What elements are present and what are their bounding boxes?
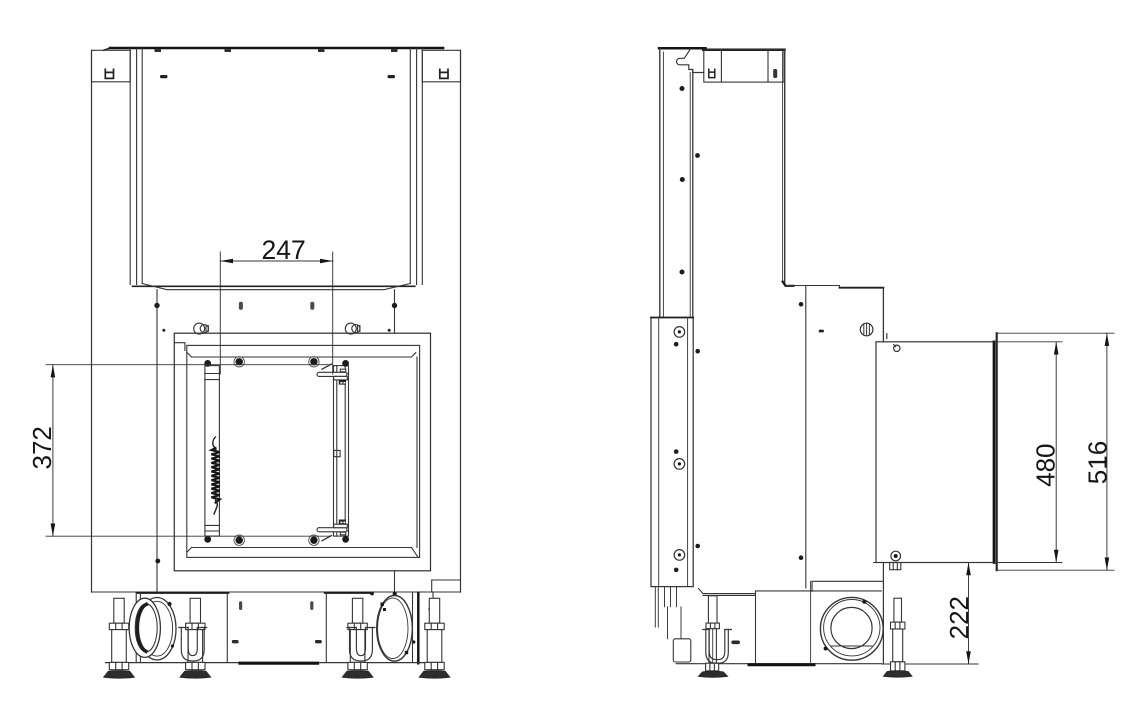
svg-text:516: 516 xyxy=(1082,441,1112,484)
svg-text:480: 480 xyxy=(1030,444,1060,487)
svg-text:247: 247 xyxy=(261,235,305,265)
svg-text:222: 222 xyxy=(944,596,974,639)
svg-text:372: 372 xyxy=(27,426,57,469)
